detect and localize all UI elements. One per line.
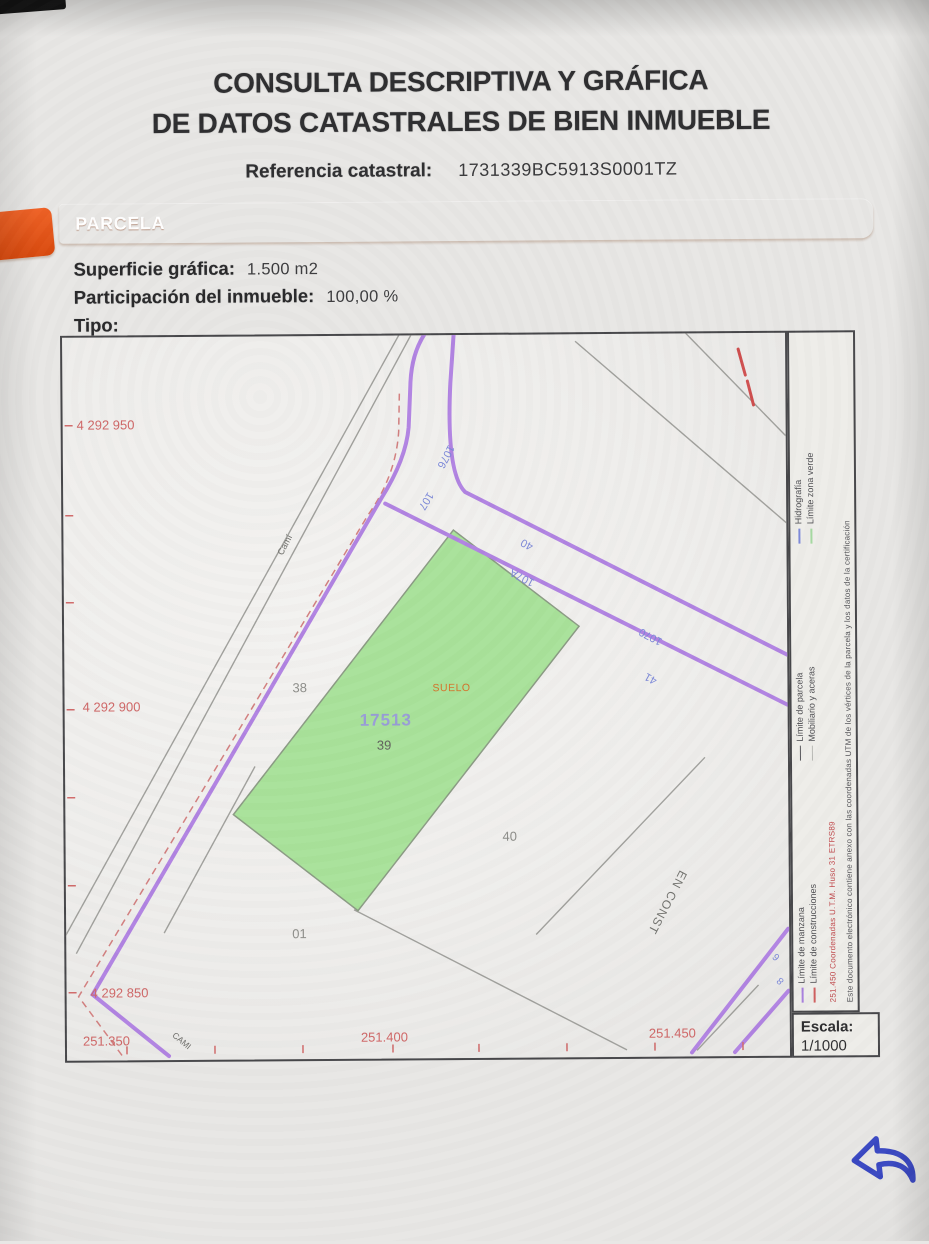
red-road-annotation	[738, 349, 753, 405]
house-number-label: 107	[416, 490, 436, 512]
street-label-cami-upper: Camí	[275, 533, 294, 557]
house-number-label: 41	[643, 670, 660, 686]
legend-swatch-manzana	[801, 988, 803, 1003]
utm-coords-note: 251.450 Coordenadas U.T.M. Huso 31 ETRS8…	[824, 342, 838, 1002]
field-label: Participación del inmueble:	[74, 285, 315, 308]
scale-label: Escala:	[801, 1017, 878, 1037]
cadastral-map: 4 292 950 4 292 900 4 292 850 251.350 25…	[60, 331, 792, 1063]
x-axis-label: 251.350	[83, 1033, 130, 1048]
cadastral-reference: Referencia catastral:1731339BC5913S0001T…	[0, 157, 926, 185]
legend-swatch-hidrografia	[798, 528, 800, 543]
legend-entry-label: Límite de parcela	[794, 673, 804, 742]
subject-parcel-number: 17513	[360, 710, 412, 729]
back-button[interactable]	[847, 1127, 924, 1200]
field-value: 100,00 %	[326, 287, 398, 306]
legend-entry: Mobiliario y aceras	[806, 667, 818, 761]
reference-label: Referencia catastral:	[245, 160, 432, 182]
parcel-fields: Superficie gráfica:1.500 m2 Participació…	[73, 253, 398, 339]
legend-entry: Límite de construcciones	[808, 884, 820, 1003]
parcel-number-label: 38	[292, 680, 307, 695]
legend-entry-label: Límite zona verde	[805, 453, 815, 525]
legend-group: Hidrografía Límite zona verde	[793, 453, 817, 544]
house-number-label: 1070	[637, 625, 664, 647]
map-legend: Límite de manzana Límite de construccion…	[787, 330, 860, 1012]
legend-group: Límite de parcela Mobiliario y aceras	[794, 667, 818, 761]
y-axis-label: 4 292 850	[91, 985, 149, 1000]
legend-swatch-zonaverde	[810, 528, 812, 543]
legend-entries: Límite de manzana Límite de construccion…	[792, 343, 820, 1003]
construction-label: EN CONST	[645, 868, 690, 937]
parcel-number-label: 01	[292, 926, 307, 941]
reply-arrow-icon	[847, 1127, 924, 1200]
y-axis-label: 4 292 900	[83, 699, 141, 714]
legend-entry: Límite de manzana	[796, 884, 808, 1003]
x-axis-label: 251.450	[649, 1025, 696, 1040]
field-superficie: Superficie gráfica:1.500 m2	[73, 253, 398, 283]
legend-group: Límite de manzana Límite de construccion…	[796, 884, 820, 1003]
legend-entry-label: Límite de manzana	[796, 907, 807, 984]
legend-entry: Límite zona verde	[805, 453, 817, 544]
map-legend-rotated: Límite de manzana Límite de construccion…	[789, 332, 858, 1010]
reference-value: 1731339BC5913S0001TZ	[458, 159, 677, 181]
section-banner-label: PARCELA	[59, 198, 873, 244]
photo-corner-shadow	[0, 0, 66, 15]
legend-entry: Hidrografía	[793, 453, 805, 544]
house-number-label: 40	[519, 536, 535, 552]
scale-value: 1/1000	[801, 1036, 878, 1056]
legend-swatch-parcela	[800, 746, 801, 761]
field-label: Superficie gráfica:	[73, 258, 235, 280]
street-label-cami-lower: CAMI	[170, 1030, 193, 1051]
document-photo: CONSULTA DESCRIPTIVA Y GRÁFICA DE DATOS …	[0, 0, 929, 1244]
parcel-number-label: 40	[502, 829, 517, 844]
legend-entry: Límite de parcela	[794, 667, 806, 761]
page-title-line2: DE DATOS CATASTRALES DE BIEN INMUEBLE	[0, 103, 926, 141]
x-axis-label: 251.400	[361, 1029, 408, 1044]
y-axis-label: 4 292 950	[77, 417, 135, 432]
land-use-label: SUELO	[432, 682, 470, 694]
house-number-label: 8	[775, 974, 787, 986]
banner-left-tab	[0, 207, 55, 261]
legend-swatch-mobiliario	[812, 746, 813, 761]
field-value: 1.500 m2	[247, 260, 318, 278]
scale-box: Escala: 1/1000	[792, 1012, 880, 1058]
subject-parcel-subnumber: 39	[377, 738, 392, 753]
legend-entry-label: Hidrografía	[793, 480, 803, 525]
cadastral-map-svg: 4 292 950 4 292 900 4 292 850 251.350 25…	[62, 333, 790, 1061]
certification-note: Este documento electrónico contiene anex…	[841, 342, 855, 1002]
section-banner-parcela: PARCELA	[59, 198, 873, 244]
field-label: Tipo:	[74, 314, 119, 335]
field-participacion: Participación del inmueble:100,00 %	[74, 281, 399, 311]
legend-swatch-construcciones	[813, 988, 815, 1003]
legend-entry-label: Límite de construcciones	[808, 884, 819, 984]
page-title-line1: CONSULTA DESCRIPTIVA Y GRÁFICA	[0, 63, 925, 101]
legend-entry-label: Mobiliario y aceras	[806, 667, 817, 742]
